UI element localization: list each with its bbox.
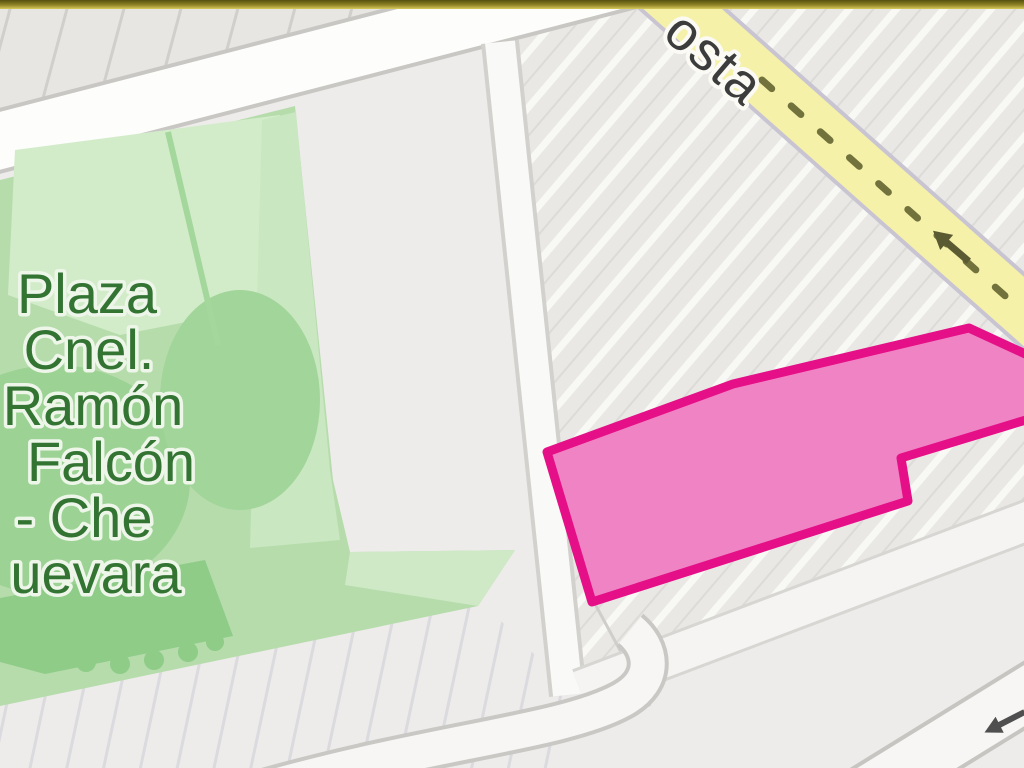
plaza-label-line-6: uevara [10, 542, 182, 605]
map-canvas[interactable]: Plaza Cnel. Ramón Falcón - Che uevara os… [0, 0, 1024, 768]
page-edge-banner [0, 0, 1024, 9]
plaza-label-line-4: Falcón [27, 430, 195, 493]
plaza-label-line-1: Plaza [17, 262, 158, 325]
map-viewport: Plaza Cnel. Ramón Falcón - Che uevara os… [0, 0, 1024, 768]
plaza-label-line-3: Ramón [3, 374, 184, 437]
plaza-label-line-2: Cnel. [24, 318, 155, 381]
plaza-label-line-5: - Che [16, 486, 153, 549]
